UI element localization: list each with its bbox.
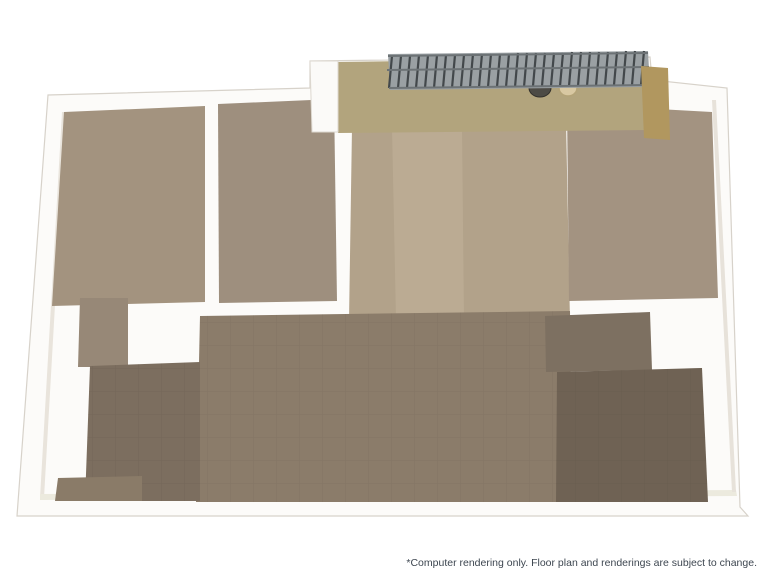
svg-text:*Computer rendering only. Floo: *Computer rendering only. Floor plan and… <box>406 557 757 569</box>
